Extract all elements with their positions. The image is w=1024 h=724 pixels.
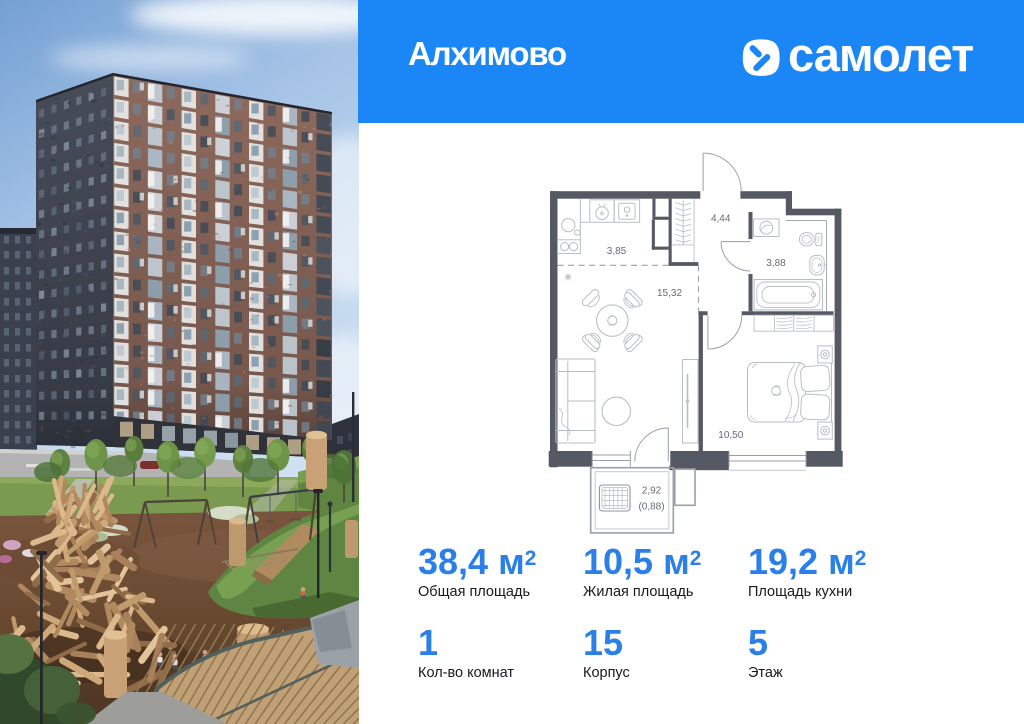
svg-text:3,88: 3,88 <box>766 258 786 269</box>
svg-text:4,44: 4,44 <box>711 214 731 225</box>
svg-text:10,50: 10,50 <box>718 430 743 441</box>
svg-text:3,85: 3,85 <box>607 246 627 257</box>
svg-text:15,32: 15,32 <box>657 288 682 299</box>
svg-text:2,92: 2,92 <box>642 486 662 497</box>
svg-text:(0,88): (0,88) <box>638 502 664 513</box>
